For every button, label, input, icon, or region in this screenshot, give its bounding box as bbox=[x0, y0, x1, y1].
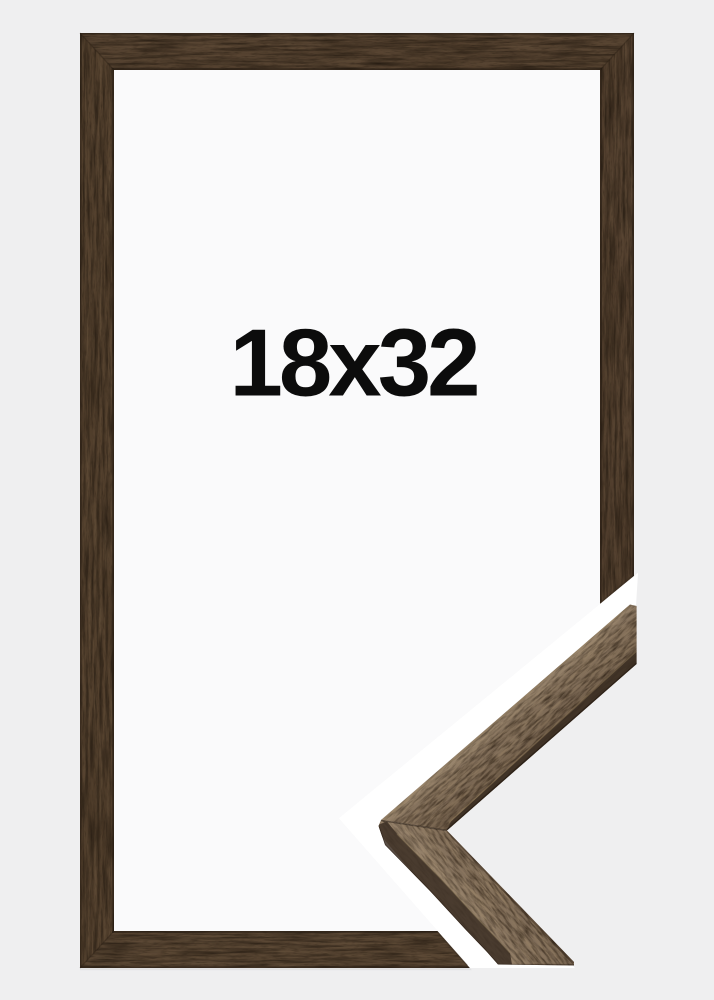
svg-text:18x32: 18x32 bbox=[230, 310, 478, 417]
